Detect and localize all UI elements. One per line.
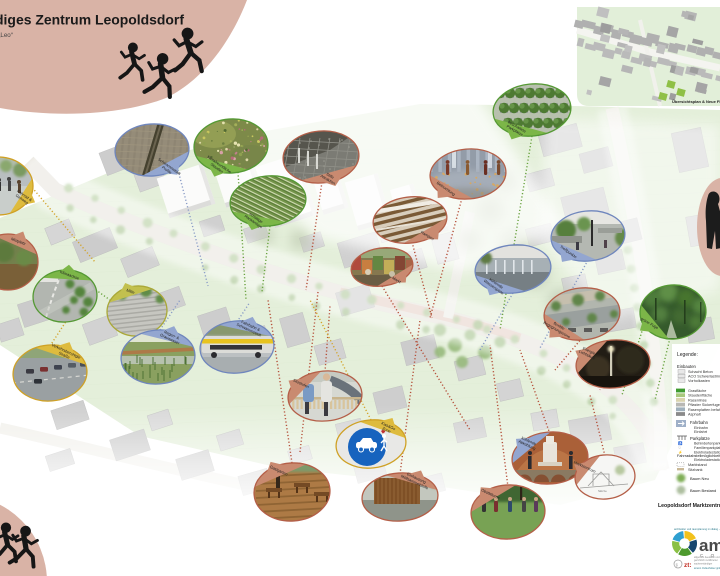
- svg-text:Legende:: Legende:: [677, 352, 698, 358]
- svg-text:Übersichtsplan & Neue Flächen: Übersichtsplan & Neue Flächen: [672, 99, 720, 104]
- svg-text:Grasfläche: Grasfläche: [688, 389, 706, 393]
- svg-text:Parkplätze: Parkplätze: [690, 436, 710, 441]
- svg-text:zt:: zt:: [684, 562, 692, 569]
- svg-text:Baum Neu: Baum Neu: [690, 476, 709, 481]
- svg-text:Marktstand: Marktstand: [688, 463, 707, 467]
- svg-text:Fahrbahn: Fahrbahn: [690, 420, 709, 425]
- svg-text:♿: ♿: [678, 441, 683, 446]
- svg-text:amcon ziviltechniker gmbh: amcon ziviltechniker gmbh: [694, 567, 720, 570]
- svg-text:Einbauten: Einbauten: [677, 364, 697, 369]
- svg-text:Leopoldsdorf Marktzentrum Mast: Leopoldsdorf Marktzentrum Masterplan: [658, 503, 720, 509]
- svg-text:Masterplan „Leo“: Masterplan „Leo“: [0, 32, 13, 39]
- svg-text:Einfahrt: Einfahrt: [694, 430, 708, 434]
- svg-text:Lebendiges Zentrum Leopoldsdor: Lebendiges Zentrum Leopoldsdorf: [0, 13, 184, 28]
- svg-text:Vorholkasten: Vorholkasten: [688, 379, 710, 383]
- svg-text:Skizze: Skizze: [598, 489, 607, 493]
- svg-text:Sitzbank: Sitzbank: [688, 468, 703, 472]
- svg-text:Baum Bestand: Baum Bestand: [690, 488, 716, 493]
- svg-text:architektur und raumplanung im: architektur und raumplanung im dialog — …: [674, 527, 720, 531]
- svg-text:ACO Schwerlastrinne: ACO Schwerlastrinne: [688, 375, 720, 379]
- svg-text:Asphalt: Asphalt: [688, 413, 702, 417]
- svg-text:§: §: [676, 562, 678, 567]
- svg-text:Behindertenparkplatz: Behindertenparkplatz: [694, 442, 720, 446]
- svg-text:Einbahn: Einbahn: [694, 426, 708, 430]
- svg-text:Pflaster Sickerfugen: Pflaster Sickerfugen: [688, 403, 720, 407]
- svg-text:Rasenplatten befahrbar: Rasenplatten befahrbar: [688, 408, 720, 412]
- svg-text:Rasenlinse: Rasenlinse: [688, 398, 707, 402]
- svg-text:Schacht Beton: Schacht Beton: [688, 370, 713, 374]
- svg-text:Familienparkplatz: Familienparkplatz: [694, 446, 720, 450]
- svg-text:Staudenfläche: Staudenfläche: [688, 394, 712, 398]
- svg-text:Elektroladestation: Elektroladestation: [694, 458, 720, 462]
- svg-text:sachverständiger: sachverständiger: [694, 562, 712, 565]
